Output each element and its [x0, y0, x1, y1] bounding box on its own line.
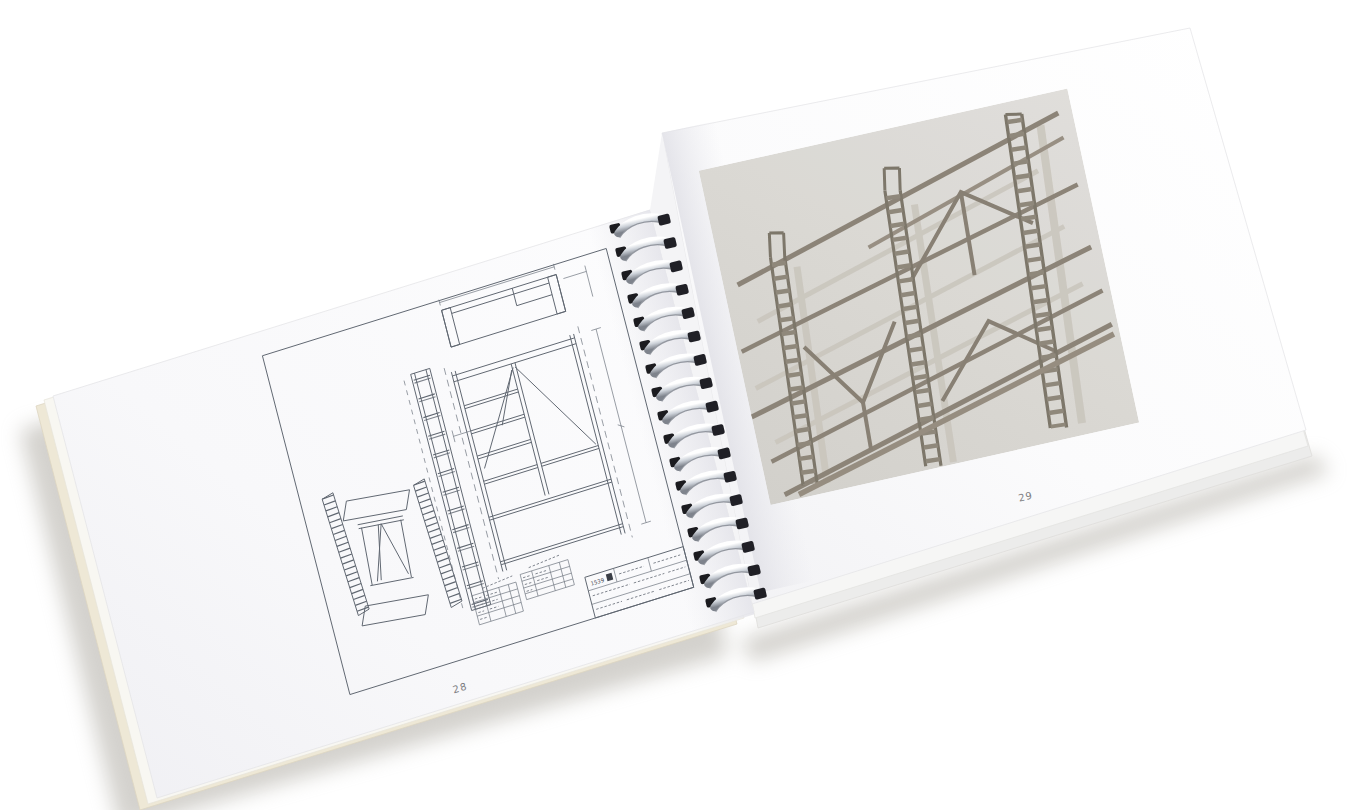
photograph-of-open-book: 1539 28 — [0, 0, 1356, 810]
book: 1539 28 — [20, 28, 1330, 810]
book-scene: 1539 28 — [0, 0, 1356, 810]
